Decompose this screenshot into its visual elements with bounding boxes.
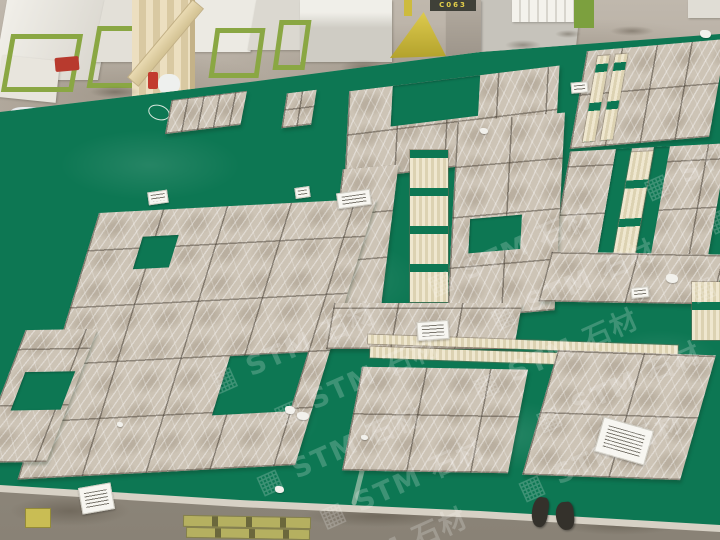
- tiles-top-strip: [165, 91, 247, 134]
- yellow-block: [25, 508, 51, 528]
- concrete-stain: [340, 60, 388, 74]
- paper-scrap: [117, 422, 123, 427]
- spec-label-slip: [630, 286, 649, 299]
- mat-gap: [468, 215, 522, 254]
- rack-location-sign: C063: [430, 0, 476, 11]
- concrete-stain: [90, 86, 140, 98]
- white-bag: [158, 74, 180, 94]
- spec-label-slip: [571, 81, 589, 93]
- paper-scrap: [297, 412, 309, 420]
- spec-label-slip: [416, 320, 449, 341]
- paper-scrap: [285, 406, 295, 414]
- slab-rack-frame: [208, 28, 265, 78]
- concrete-stain: [555, 30, 581, 38]
- label-text: [297, 189, 308, 196]
- mat-gap: [391, 75, 480, 126]
- wood-pallet-beam: [186, 527, 310, 540]
- spec-label-slip: [147, 190, 169, 206]
- factory-floor-photo: C063 ▦ STM 石材 ▦ STM 石材 ▦ STM 石材▦ STM 石材 …: [0, 0, 720, 540]
- mat-gap: [133, 235, 179, 269]
- label-text: [602, 425, 645, 457]
- tiles-center-lower-main: [342, 367, 528, 474]
- slab-curtain-row: [512, 0, 576, 22]
- mat-gap: [212, 352, 308, 415]
- label-text: [634, 289, 647, 296]
- red-bottle: [148, 72, 158, 89]
- marble-slab: [688, 0, 720, 18]
- slab-rack-frame: [272, 20, 311, 70]
- label-text: [84, 489, 110, 510]
- red-tray: [54, 56, 79, 72]
- paper-scrap: [480, 128, 488, 134]
- label-text: [341, 193, 366, 206]
- stand-pole: [404, 0, 412, 16]
- accent-strip-column: [410, 150, 448, 302]
- green-rack-post: [574, 0, 594, 28]
- concrete-stain: [425, 58, 455, 68]
- paper-scrap: [275, 486, 284, 493]
- concrete-stain: [245, 88, 285, 98]
- mat-worn-patch: [60, 130, 240, 200]
- label-text: [574, 84, 586, 91]
- marble-slab: [300, 0, 392, 62]
- paper-scrap: [700, 30, 711, 38]
- concrete-stain: [610, 26, 654, 36]
- mat-gap: [11, 371, 76, 410]
- tiles-top-right: [570, 39, 720, 149]
- spec-label-slip: [78, 482, 115, 514]
- blue-white-bag: [10, 107, 42, 121]
- label-text: [151, 193, 166, 202]
- tiles-bottom-right: [522, 350, 716, 480]
- yellow-a-stand: [390, 12, 446, 58]
- spec-label-slip: [294, 186, 310, 199]
- concrete-stain: [505, 40, 541, 50]
- tiles-top-squares: [281, 90, 316, 129]
- paper-scrap: [361, 435, 368, 440]
- tiles-right-band: [550, 143, 720, 264]
- label-text: [421, 324, 445, 337]
- tiles-far-right-strips: [692, 282, 720, 340]
- paper-scrap: [666, 274, 678, 283]
